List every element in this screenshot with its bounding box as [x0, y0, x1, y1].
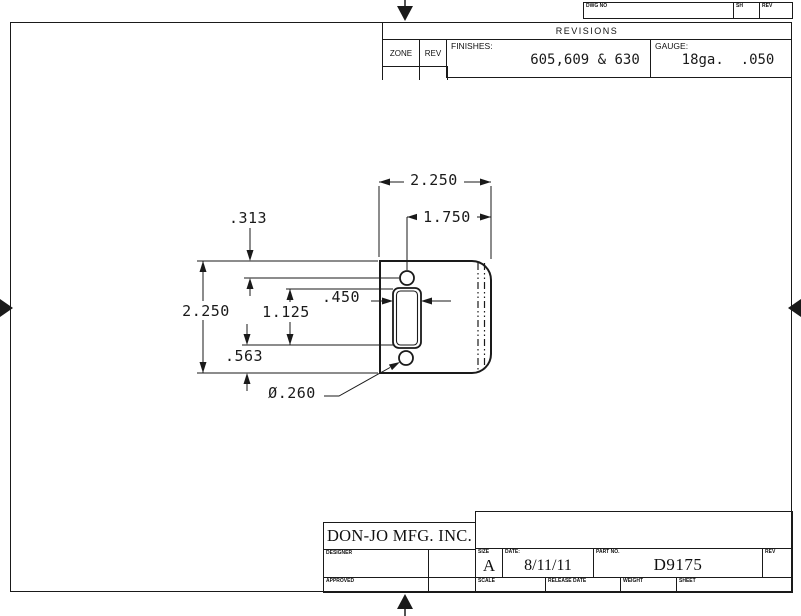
- dim-slot-to-bottom-text: .563: [214, 349, 274, 364]
- designer-label: DESIGNER: [326, 551, 352, 556]
- finishes-label: FINISHES:: [451, 42, 493, 51]
- weight-cell: WEIGHT: [620, 577, 677, 593]
- rev-cell: REV: [762, 548, 793, 578]
- center-marker-right-icon: [782, 296, 801, 320]
- approved-label: APPROVED: [326, 579, 354, 584]
- revisions-title: REVISIONS: [556, 26, 619, 36]
- gauge-value: 18ga. .050: [663, 53, 793, 67]
- dim-hole-diameter-text: Ø.260: [262, 386, 322, 401]
- date-cell: DATE: 8/11/11: [502, 548, 594, 578]
- release-date-cell: RELEASE DATE: [545, 577, 621, 593]
- center-marker-bottom-icon: [394, 594, 416, 616]
- rev-cell-top: REV: [759, 2, 793, 19]
- approved-cell: APPROVED: [323, 577, 429, 593]
- dwg-no-label: DWG NO: [586, 4, 607, 9]
- sh-cell: SH: [733, 2, 760, 19]
- rev-label-top: REV: [762, 4, 772, 9]
- size-value: A: [476, 555, 502, 577]
- rev-label: REV: [425, 49, 441, 58]
- finishes-value: 605,609 & 630: [520, 53, 650, 67]
- dwg-no-cell: DWG NO: [583, 2, 734, 19]
- sh-label: SH: [736, 4, 743, 9]
- slot-outer: [393, 288, 421, 348]
- top-hole: [400, 271, 414, 285]
- sheet-label: SHEET: [679, 579, 696, 584]
- company-name: DON-JO MFG. INC.: [327, 526, 472, 546]
- center-marker-left-icon: [0, 296, 16, 320]
- designer-right-cell: [428, 549, 476, 578]
- scale-cell: SCALE: [475, 577, 546, 593]
- zone-label: ZONE: [390, 49, 412, 58]
- approved-right-cell: [428, 577, 476, 593]
- part-no-cell: PART NO. D9175: [593, 548, 763, 578]
- dim-slot-height-text: 1.125: [256, 305, 316, 320]
- zone-header-cell: ZONE: [382, 39, 420, 67]
- title-block-upper-cell: [475, 511, 793, 549]
- weight-label: WEIGHT: [623, 579, 643, 584]
- dim-slot-width-text: .450: [311, 290, 371, 305]
- slot-inner: [397, 291, 418, 345]
- dim-overall-height-text: 2.250: [176, 304, 236, 319]
- rev-header-cell: REV: [419, 39, 447, 67]
- designer-cell: DESIGNER: [323, 549, 429, 578]
- part-no-value: D9175: [594, 554, 762, 576]
- date-value: 8/11/11: [503, 555, 593, 577]
- dim-hole-from-top-text: .313: [218, 211, 278, 226]
- release-date-label: RELEASE DATE: [548, 579, 586, 584]
- zone-rev-empty-row: [382, 66, 448, 80]
- dim-overall-width-text: 2.250: [404, 173, 464, 188]
- company-box: DON-JO MFG. INC.: [323, 522, 476, 550]
- size-cell: SIZE A: [475, 548, 503, 578]
- bottom-hole: [399, 351, 413, 365]
- dim-hole-to-edge-text: 1.750: [417, 210, 477, 225]
- revisions-title-bar: REVISIONS: [382, 22, 792, 40]
- sheet-cell: SHEET: [676, 577, 793, 593]
- gauge-label: GAUGE:: [655, 42, 688, 51]
- drawing-sheet: DWG NO SH REV REVISIONS ZONE REV FINISHE…: [0, 0, 801, 616]
- center-marker-top-icon: [394, 0, 416, 22]
- scale-label: SCALE: [478, 579, 495, 584]
- rev-label-title: REV: [765, 550, 775, 555]
